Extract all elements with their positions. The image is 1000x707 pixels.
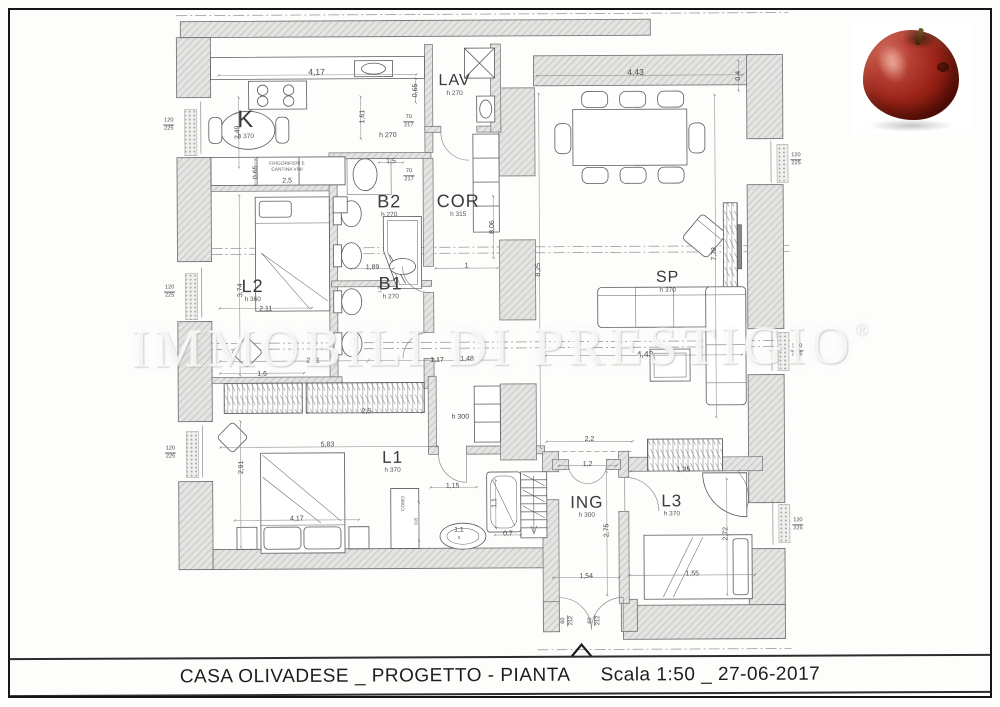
- sheet-border: [8, 8, 992, 698]
- scanned-floor-plan-sheet: Kh 370LAVh 270B2h 270CORh 315B1h 270L2h …: [0, 0, 1000, 707]
